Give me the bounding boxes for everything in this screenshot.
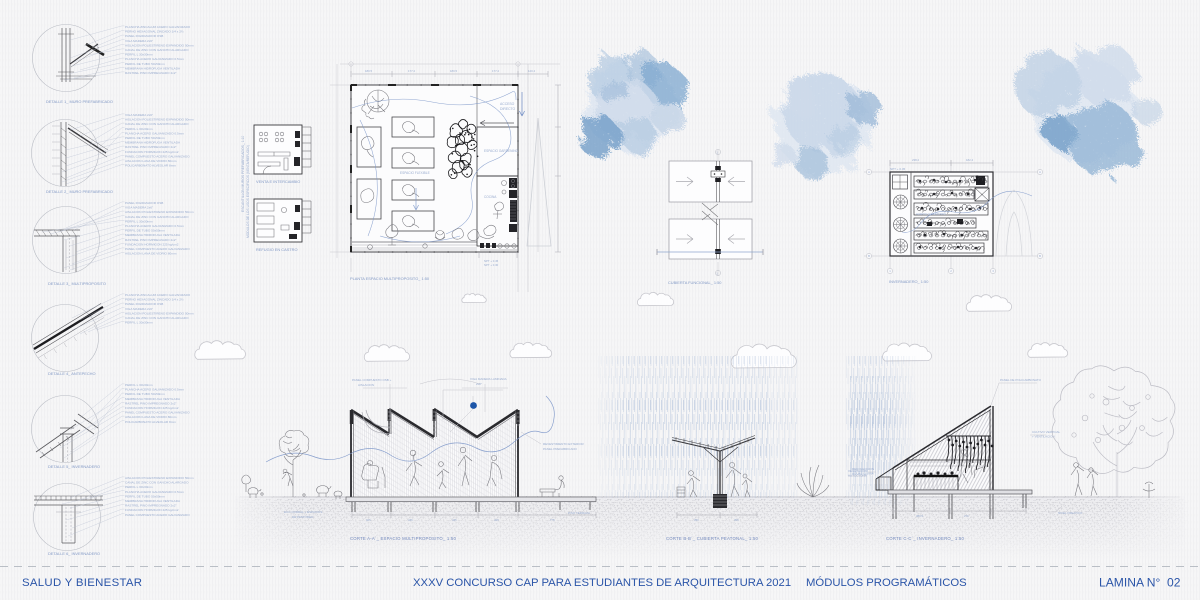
svg-text:DETALLE 2_ MURO PREFABRICADO: DETALLE 2_ MURO PREFABRICADO (46, 189, 113, 194)
svg-text:MODULOS DE LOS USOS ESPECIFICO: MODULOS DE LOS USOS ESPECIFICOS (VENTA/R… (246, 145, 250, 238)
svg-text:PERFIL L 30x30mm: PERFIL L 30x30mm (125, 383, 153, 387)
svg-text:MEMBRANA HIDROFUGA VENTILADA: MEMBRANA HIDROFUGA VENTILADA (125, 66, 181, 70)
svg-text:MEMBRANA HIDROFUGA VENTILADA: MEMBRANA HIDROFUGA VENTILADA (125, 499, 181, 503)
svg-text:A: A (1039, 170, 1041, 174)
svg-text:446: 446 (408, 518, 413, 522)
svg-text:PANEL COMPUESTO OSB +: PANEL COMPUESTO OSB + (352, 378, 392, 382)
svg-text:PLANCHA ACERO GALVANIZADO 0.5m: PLANCHA ACERO GALVANIZADO 0.5mm (125, 490, 184, 494)
svg-text:PLANTA ESPACIO MULTIPROPOSITO_: PLANTA ESPACIO MULTIPROPOSITO_ 1:50 (350, 276, 430, 281)
svg-text:PLANCHA ACERO GALVANIZADO 0.5m: PLANCHA ACERO GALVANIZADO 0.5mm (125, 131, 184, 135)
svg-text:MEMBRANA HIDROFUGA VENTILADA: MEMBRANA HIDROFUGA VENTILADA (125, 233, 181, 237)
svg-text:PANEL RIGIDIZADOR OSB: PANEL RIGIDIZADOR OSB (125, 201, 163, 205)
svg-text:ACCESO: ACCESO (500, 102, 515, 106)
svg-text:2x8”: 2x8” (476, 382, 482, 386)
svg-text:DETALLE 6_ INVERNADERO: DETALLE 6_ INVERNADERO (48, 551, 100, 556)
svg-text:PERNO HEXAGONAL ZINCADO 1/4 x: PERNO HEXAGONAL ZINCADO 1/4 x 2½ (125, 298, 184, 302)
svg-text:DETALLE 4_ ANTEPECHO: DETALLE 4_ ANTEPECHO (48, 371, 96, 376)
svg-text:PERFIL L 30x30mm: PERFIL L 30x30mm (125, 53, 153, 57)
svg-text:PLANCHA ZINCALUM ACERO GALVANI: PLANCHA ZINCALUM ACERO GALVANIZADO (125, 25, 191, 29)
svg-text:AISLACION LANA DE VIDRIO 80mm: AISLACION LANA DE VIDRIO 80mm (125, 415, 177, 419)
svg-text:INVERNADERO_ 1:50: INVERNADERO_ 1:50 (889, 279, 929, 284)
svg-text:PLANCHA ZINCALUM ACERO GALVANI: PLANCHA ZINCALUM ACERO GALVANIZADO (125, 293, 191, 297)
svg-text:PERFIL DE TUBO 50x50mm: PERFIL DE TUBO 50x50mm (125, 392, 165, 396)
svg-text:CANAL DE ZINC CON GANCHO ALARG: CANAL DE ZINC CON GANCHO ALARGADO (125, 48, 189, 52)
svg-text:350: 350 (734, 518, 739, 522)
svg-text:REFUGIO EN CASTRO: REFUGIO EN CASTRO (256, 247, 298, 252)
svg-text:POLICARBONATO ALVEOLAR 8mm: POLICARBONATO ALVEOLAR 8mm (125, 420, 176, 424)
svg-text:775: 775 (550, 518, 555, 522)
svg-text:MÓDULOS PROGRAMÁTICOS: MÓDULOS PROGRAMÁTICOS (806, 576, 967, 589)
svg-text:POLICARBONATO ALVEOLAR 8mm: POLICARBONATO ALVEOLAR 8mm (125, 164, 176, 168)
svg-text:RASTREL PINO IMPREGNADO 2x2”: RASTREL PINO IMPREGNADO 2x2” (125, 71, 176, 75)
svg-text:AISLACION LANA DE VIDRIO 80mm: AISLACION LANA DE VIDRIO 80mm (125, 252, 177, 256)
svg-text:VIGA MADERA LAMINADA: VIGA MADERA LAMINADA (470, 377, 507, 381)
svg-text:350: 350 (694, 518, 699, 522)
svg-text:PANEL COMPUESTO ACERO GALVANIZ: PANEL COMPUESTO ACERO GALVANIZADO (125, 513, 190, 517)
svg-text:VENTA E INTERCAMBIO: VENTA E INTERCAMBIO (256, 179, 300, 184)
svg-text:B: B (868, 254, 870, 258)
svg-text:425: 425 (366, 518, 371, 522)
svg-text:PANEL COMPUESTO ACERO GALVANIZ: PANEL COMPUESTO ACERO GALVANIZADO (125, 411, 190, 415)
svg-text:PANEL COMPUESTO ACERO GALVANIZ: PANEL COMPUESTO ACERO GALVANIZADO (125, 154, 190, 158)
svg-text:PERFIL DE TUBO 50x50mm: PERFIL DE TUBO 50x50mm (125, 136, 165, 140)
svg-text:446: 446 (494, 518, 499, 522)
svg-text:CANAL DE ZINC CON GANCHO ALARG: CANAL DE ZINC CON GANCHO ALARGADO (125, 215, 189, 219)
svg-text:PANEL RIGIDIZADOR OSB: PANEL RIGIDIZADOR OSB (125, 34, 163, 38)
svg-text:NIVEL FREATICO: NIVEL FREATICO (1058, 511, 1083, 515)
svg-text:PERNO HEXAGONAL ZINCADO 1/4 x: PERNO HEXAGONAL ZINCADO 1/4 x 2½ (125, 30, 184, 34)
svg-text:PANEL COMPUESTO ACERO GALVANIZ: PANEL COMPUESTO ACERO GALVANIZADO (125, 247, 190, 251)
svg-text:AISLACION POLIESTIRENO EXPANDI: AISLACION POLIESTIRENO EXPANDIDO 50mm (125, 476, 194, 480)
svg-text:NPT + 0.30: NPT + 0.30 (484, 263, 499, 267)
svg-text:DETALLE 1_ MURO PREFABRICADO: DETALLE 1_ MURO PREFABRICADO (46, 99, 113, 104)
svg-text:VIGA MADERA 2x6”: VIGA MADERA 2x6” (125, 307, 153, 311)
svg-text:ESPACIO FLEXIBLE: ESPACIO FLEXIBLE (400, 171, 430, 175)
svg-text:180.5: 180.5 (450, 69, 457, 73)
svg-text:AISLACION: AISLACION (358, 383, 374, 387)
svg-text:DETALLE 3_ MULTIPROPOSITO: DETALLE 3_ MULTIPROPOSITO (48, 281, 106, 286)
svg-text:NPT + 0.45: NPT + 0.45 (890, 167, 906, 171)
svg-text:VIGA MADERA 2x6”: VIGA MADERA 2x6” (125, 206, 153, 210)
svg-text:CANAL DE ZINC CON GANCHO ALARG: CANAL DE ZINC CON GANCHO ALARGADO (125, 316, 189, 320)
svg-text:CULTIVO VERTICAL: CULTIVO VERTICAL (1032, 430, 1061, 434)
svg-text:MEMBRANA HIDROFUGA VENTILADA: MEMBRANA HIDROFUGA VENTILADA (125, 397, 181, 401)
svg-text:PERFIL DE TUBO 50x50mm: PERFIL DE TUBO 50x50mm (125, 494, 165, 498)
svg-text:PERFIL L 30x30mm: PERFIL L 30x30mm (125, 219, 153, 223)
svg-text:MEMBRANA HIDROFUGA VENTILADA: MEMBRANA HIDROFUGA VENTILADA (125, 141, 181, 145)
svg-text:CORTE C-C´_ INVERNADERO_ 1:50: CORTE C-C´_ INVERNADERO_ 1:50 (886, 536, 964, 541)
svg-text:VIGA MADERA 2x6”: VIGA MADERA 2x6” (125, 113, 153, 117)
svg-text:RECOLECCION: RECOLECCION (852, 467, 874, 471)
svg-text:PLANCHA ACERO GALVANIZADO 0.5m: PLANCHA ACERO GALVANIZADO 0.5mm (125, 224, 184, 228)
svg-text:PERFIL DE TUBO 50x50mm: PERFIL DE TUBO 50x50mm (125, 62, 165, 66)
svg-text:CUBIERTA FUNCIONAL_ 1:50: CUBIERTA FUNCIONAL_ 1:50 (668, 280, 722, 285)
svg-text:RASTREL PINO IMPREGNADO 2x2”: RASTREL PINO IMPREGNADO 2x2” (125, 504, 176, 508)
svg-text:B: B (1039, 254, 1041, 258)
svg-text:PERFIL DE TUBO 50x50mm: PERFIL DE TUBO 50x50mm (125, 229, 165, 233)
svg-text:238.2: 238.2 (912, 158, 919, 162)
svg-text:DIRECTO: DIRECTO (500, 107, 516, 111)
svg-text:CORTE A-A´_ ESPACIO MULTIPROPO: CORTE A-A´_ ESPACIO MULTIPROPOSITO_ 1:50 (350, 536, 456, 541)
svg-text:425: 425 (452, 518, 457, 522)
svg-text:276: 276 (964, 514, 969, 518)
svg-text:PLANCHA ACERO GALVANIZADO 0.5m: PLANCHA ACERO GALVANIZADO 0.5mm (125, 57, 184, 61)
svg-text:120.4: 120.4 (528, 69, 535, 73)
svg-text:AISLACION POLIESTIRENO EXPANDI: AISLACION POLIESTIRENO EXPANDIDO 50mm (125, 43, 194, 47)
svg-text:PISO TERRAZA: PISO TERRAZA (568, 511, 590, 515)
svg-text:380.5: 380.5 (916, 514, 923, 518)
svg-text:HUERTO COMUNITARIO: HUERTO COMUNITARIO (916, 212, 946, 216)
svg-text:FUNDACION HORMIGON 225 kg/cm2: FUNDACION HORMIGON 225 kg/cm2 (125, 150, 179, 154)
svg-text:PANEL DE POLICARBONATO: PANEL DE POLICARBONATO (1000, 378, 1042, 382)
svg-text:XXXV CONCURSO CAP PARA ESTUDIA: XXXV CONCURSO CAP PARA ESTUDIANTES DE AR… (413, 577, 791, 589)
svg-text:FUNDACION HORMIGON 225 kg/cm2: FUNDACION HORMIGON 225 kg/cm2 (125, 242, 179, 246)
svg-text:PANEL PREFABRICADO: PANEL PREFABRICADO (543, 447, 578, 451)
svg-text:RASTREL PINO IMPREGNADO 2x2”: RASTREL PINO IMPREGNADO 2x2” (125, 145, 176, 149)
svg-text:+ VENTILACION: + VENTILACION (1032, 435, 1055, 439)
svg-text:AISLACION POLIESTIRENO EXPANDI: AISLACION POLIESTIRENO EXPANDIDO 50mm (125, 210, 194, 214)
svg-text:177.2: 177.2 (408, 69, 415, 73)
svg-text:REVESTIMIENTO EXTERIOR: REVESTIMIENTO EXTERIOR (543, 442, 584, 446)
svg-text:LAMINA N° 02: LAMINA N° 02 (1099, 576, 1181, 590)
svg-text:AISLACION LANA DE VIDRIO 80mm: AISLACION LANA DE VIDRIO 80mm (125, 159, 177, 163)
svg-text:COCINA: COCINA (484, 195, 497, 199)
svg-text:A: A (868, 170, 870, 174)
svg-text:ESCANTILLON MUROS PREFABRICADO: ESCANTILLON MUROS PREFABRICADOS_ 1:10 (241, 136, 245, 212)
svg-text:182.4: 182.4 (966, 158, 973, 162)
svg-text:FUNDACION HORMIGON 225 kg/cm2: FUNDACION HORMIGON 225 kg/cm2 (125, 406, 179, 410)
svg-text:DETALLE 5_ INVERNADERO: DETALLE 5_ INVERNADERO (48, 464, 100, 469)
svg-text:DE PASTOREO: DE PASTOREO (292, 515, 314, 519)
svg-text:CANAL DE ZINC CON GANCHO ALARG: CANAL DE ZINC CON GANCHO ALARGADO (125, 481, 189, 485)
svg-text:CANAL DE ZINC CON GANCHO ALARG: CANAL DE ZINC CON GANCHO ALARGADO (125, 122, 189, 126)
svg-text:177.2: 177.2 (492, 69, 499, 73)
svg-text:PERFIL L 30x30mm: PERFIL L 30x30mm (125, 127, 153, 131)
svg-text:PERFIL L 30x30mm: PERFIL L 30x30mm (125, 321, 153, 325)
svg-text:ECO CORRAL + ESPACIOS: ECO CORRAL + ESPACIOS (284, 510, 322, 514)
svg-text:AISLACION POLIESTIRENO EXPANDI: AISLACION POLIESTIRENO EXPANDIDO 50mm (125, 311, 194, 315)
svg-text:RASTREL PINO IMPREGNADO 2x2”: RASTREL PINO IMPREGNADO 2x2” (125, 238, 176, 242)
svg-text:ESPACIO GARDENING: ESPACIO GARDENING (484, 149, 519, 153)
svg-text:SALUD Y BIENESTAR: SALUD Y BIENESTAR (22, 577, 142, 589)
svg-text:PLANCHA ACERO GALVANIZADO 0.5m: PLANCHA ACERO GALVANIZADO 0.5mm (125, 388, 184, 392)
svg-text:VIGA MADERA 2x6”: VIGA MADERA 2x6” (125, 39, 153, 43)
svg-text:FUNDACION HORMIGON 225 kg/cm2: FUNDACION HORMIGON 225 kg/cm2 (125, 508, 179, 512)
svg-text:PERFIL L 30x30mm: PERFIL L 30x30mm (125, 485, 153, 489)
svg-text:CORTE B-B´_ CUBIERTA PEATONAL_: CORTE B-B´_ CUBIERTA PEATONAL_ 1:50 (666, 536, 759, 541)
svg-text:AISLACION POLIESTIRENO EXPANDI: AISLACION POLIESTIRENO EXPANDIDO 50mm (125, 118, 194, 122)
svg-text:RASTREL PINO IMPREGNADO 2x2”: RASTREL PINO IMPREGNADO 2x2” (125, 401, 176, 405)
svg-text:PANEL RIGIDIZADOR OSB: PANEL RIGIDIZADOR OSB (125, 302, 163, 306)
svg-text:180.5: 180.5 (365, 69, 372, 73)
